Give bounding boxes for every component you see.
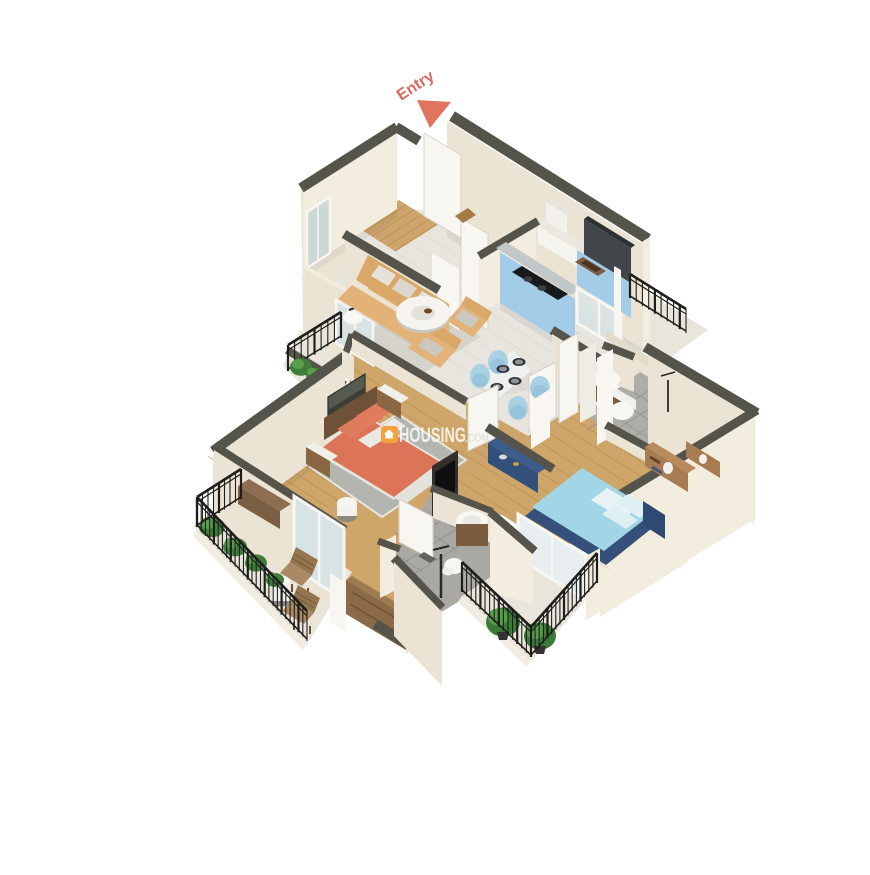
svg-text:.COM: .COM	[465, 431, 489, 445]
svg-text:HOUSING: HOUSING	[399, 424, 466, 447]
